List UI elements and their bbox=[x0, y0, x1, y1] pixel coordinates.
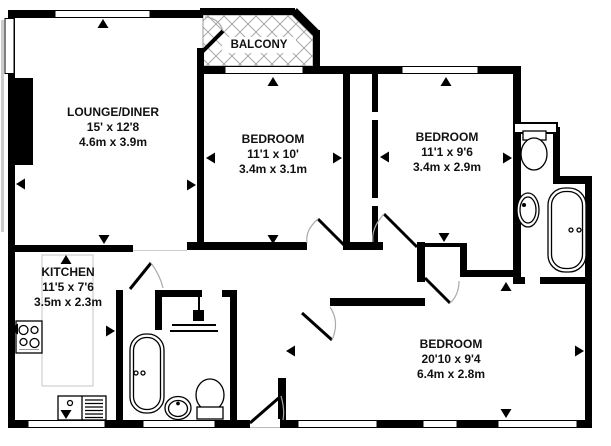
room-name: BEDROOM bbox=[203, 132, 343, 147]
room-size-imperial: 20'10 x 9'4 bbox=[381, 352, 521, 367]
shower-icon bbox=[170, 297, 218, 331]
room-size-metric: 3.5m x 2.3m bbox=[0, 295, 136, 310]
floorplan: BALCONY LOUNGE/DINER 15' x 12'8 4.6m x 3… bbox=[0, 0, 611, 446]
room-name: LOUNGE/DINER bbox=[43, 105, 183, 120]
wall-segment bbox=[513, 277, 525, 284]
bathroom-fixtures bbox=[130, 297, 224, 420]
room-size-imperial: 11'5 x 7'6 bbox=[0, 280, 136, 295]
room-label-bedroom1: BEDROOM 11'1 x 10' 3.4m x 3.1m bbox=[203, 132, 343, 177]
arrow-left-icon bbox=[16, 179, 25, 190]
room-label-bedroom2: BEDROOM 11'1 x 9'6 3.4m x 2.9m bbox=[377, 130, 517, 175]
wall-segment bbox=[330, 298, 425, 306]
window bbox=[55, 11, 150, 18]
arrow-right-icon bbox=[575, 346, 584, 357]
window bbox=[423, 421, 457, 428]
wall-segment bbox=[513, 74, 521, 284]
arrow-left-icon bbox=[286, 346, 295, 357]
window bbox=[28, 421, 105, 428]
room-size-metric: 3.4m x 2.9m bbox=[377, 160, 517, 175]
door-hall-bedroom3 bbox=[425, 278, 459, 303]
arrow-down-icon bbox=[439, 233, 450, 242]
arrow-right-icon bbox=[187, 180, 196, 191]
wall-segment bbox=[425, 243, 467, 247]
window bbox=[498, 421, 577, 428]
room-label-bedroom3: BEDROOM 20'10 x 9'4 6.4m x 2.8m bbox=[381, 337, 521, 382]
sink-icon bbox=[165, 397, 191, 420]
wall-segment bbox=[116, 290, 123, 428]
room-size-imperial: 11'1 x 10' bbox=[203, 147, 343, 162]
wall-segment bbox=[460, 247, 467, 277]
wall-segment bbox=[553, 127, 560, 184]
arrow-right-icon bbox=[106, 326, 115, 337]
window bbox=[298, 421, 377, 428]
balcony-label: BALCONY bbox=[222, 37, 296, 53]
bathtub-icon bbox=[548, 188, 586, 272]
sink-icon bbox=[517, 193, 539, 227]
door-bedroom1 bbox=[307, 219, 345, 246]
wall-segment bbox=[343, 242, 383, 250]
window bbox=[402, 67, 478, 74]
room-size-imperial: 11'1 x 9'6 bbox=[377, 145, 517, 160]
wall-segment bbox=[230, 290, 237, 428]
toilet-icon bbox=[521, 131, 547, 170]
room-name: BEDROOM bbox=[381, 337, 521, 352]
room-size-metric: 3.4m x 3.1m bbox=[203, 162, 343, 177]
wall-segment bbox=[540, 277, 592, 284]
wall-segment bbox=[155, 290, 162, 330]
wall-segment bbox=[343, 74, 350, 250]
wall-segment bbox=[417, 242, 425, 282]
wall-segment bbox=[313, 30, 320, 68]
wall-segment bbox=[372, 74, 378, 112]
window bbox=[225, 67, 303, 74]
ensuite-fixtures bbox=[514, 123, 586, 272]
room-label-kitchen: KITCHEN 11'5 x 7'6 3.5m x 2.3m bbox=[0, 265, 136, 310]
room-size-metric: 4.6m x 3.9m bbox=[43, 135, 183, 150]
room-size-imperial: 15' x 12'8 bbox=[43, 120, 183, 135]
room-size-metric: 6.4m x 2.8m bbox=[381, 367, 521, 382]
arrow-up-icon bbox=[98, 19, 109, 28]
room-label-lounge: LOUNGE/DINER 15' x 12'8 4.6m x 3.9m bbox=[43, 105, 183, 150]
window bbox=[5, 19, 14, 74]
arrow-up-icon bbox=[441, 77, 452, 86]
wall-segment bbox=[155, 290, 202, 297]
wall-segment bbox=[467, 270, 521, 277]
room-name: BEDROOM bbox=[377, 130, 517, 145]
door-bedroom3-inner bbox=[302, 307, 336, 340]
arrow-up-icon bbox=[501, 282, 512, 291]
room-name: KITCHEN bbox=[0, 265, 136, 280]
arrow-down-icon bbox=[501, 409, 512, 418]
window bbox=[143, 421, 215, 428]
hob-icon bbox=[16, 321, 42, 353]
wall-segment bbox=[14, 78, 33, 165]
toilet-icon bbox=[196, 379, 224, 419]
bathtub-icon bbox=[130, 334, 164, 413]
arrow-down-icon bbox=[99, 235, 110, 244]
window-sill-line bbox=[1, 20, 4, 232]
wall-segment bbox=[200, 8, 295, 15]
wall-segment bbox=[8, 245, 133, 252]
wall-segment bbox=[187, 242, 307, 250]
arrow-up-icon bbox=[268, 77, 279, 86]
